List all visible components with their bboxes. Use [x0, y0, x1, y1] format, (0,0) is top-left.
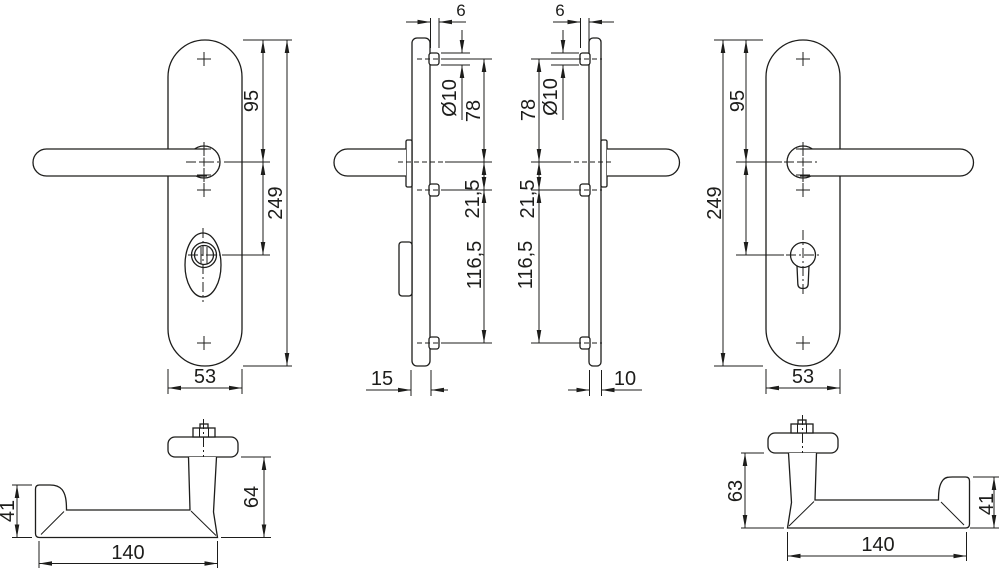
technical-drawing-sheet: 95 249 53 6 Ø10 78 21,5 116,5 15: [0, 0, 1000, 568]
handle-rose-profile: [406, 140, 412, 187]
dim-lever-length: 140: [111, 542, 144, 564]
plate-profile-outline: [589, 38, 601, 366]
plate-outline: [168, 40, 242, 366]
dim-screw-to-screw: 116,5: [464, 241, 486, 290]
dim-grip-height: 41: [976, 493, 998, 515]
plate-profile-view-right: 6 Ø10 78 21,5 116,5 10: [515, 1, 680, 396]
dim-top-to-handle: 95: [727, 90, 749, 112]
dim-total-height: 249: [265, 186, 287, 219]
handle-lever-profile: [607, 149, 680, 176]
dim-pin-protrusion: 6: [456, 1, 465, 20]
drawing-canvas: 95 249 53 6 Ø10 78 21,5 116,5 15: [0, 0, 1000, 568]
dim-pin-protrusion: 6: [555, 1, 564, 20]
dim-total-height: 63: [725, 480, 747, 502]
dim-top-screw-to-handle: 78: [518, 99, 540, 121]
plate-profile-view-left: 6 Ø10 78 21,5 116,5 15: [334, 1, 492, 396]
lever-view-left: 41 64 140: [0, 419, 271, 568]
dim-lever-length: 140: [861, 534, 894, 556]
handle-lever: [33, 149, 207, 176]
dim-top-screw-to-handle: 78: [463, 100, 485, 122]
dim-pin-diameter: Ø10: [439, 79, 461, 117]
plate-profile-outline: [412, 38, 430, 366]
screw-hole-crosses: [197, 52, 211, 350]
dim-plate-depth: 15: [371, 368, 393, 390]
dim-total-height: 249: [704, 186, 726, 219]
dim-plate-width: 53: [792, 366, 814, 388]
handle-lever-profile: [334, 149, 406, 176]
dim-plate-depth: 10: [614, 368, 636, 390]
dim-grip-height: 41: [0, 500, 19, 522]
plate-front-view-left: 95 249 53: [33, 40, 292, 394]
center-lines: [784, 162, 820, 296]
dim-plate-width: 53: [194, 366, 216, 388]
dim-screw-to-screw: 116,5: [515, 241, 537, 290]
dim-handle-to-screw: 21,5: [462, 180, 484, 219]
dim-pin-diameter: Ø10: [540, 78, 562, 116]
screw-hole-crosses: [796, 52, 810, 350]
lever-outline: [788, 453, 970, 528]
dim-total-height: 64: [241, 486, 263, 508]
cylinder-guard-block: [399, 242, 412, 296]
lever-outline: [36, 457, 218, 538]
dim-top-to-handle: 95: [241, 90, 263, 112]
plate-outline: [766, 40, 840, 366]
dim-handle-to-screw: 21,5: [517, 180, 539, 219]
handle-lever: [800, 149, 974, 176]
plate-front-view-right: 95 249 53: [704, 40, 974, 394]
handle-rose-profile: [601, 140, 607, 187]
lever-view-right: 63 41 140: [725, 415, 999, 561]
